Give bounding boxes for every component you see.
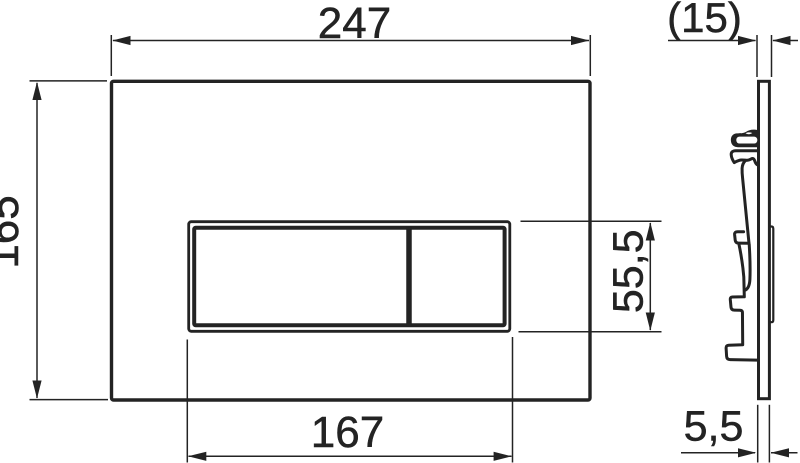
svg-text:167: 167	[311, 408, 384, 457]
svg-text:5,5: 5,5	[684, 403, 744, 451]
svg-text:(15): (15)	[667, 0, 742, 41]
svg-text:247: 247	[318, 0, 391, 48]
svg-text:55,5: 55,5	[605, 229, 653, 313]
svg-text:165: 165	[0, 195, 28, 268]
